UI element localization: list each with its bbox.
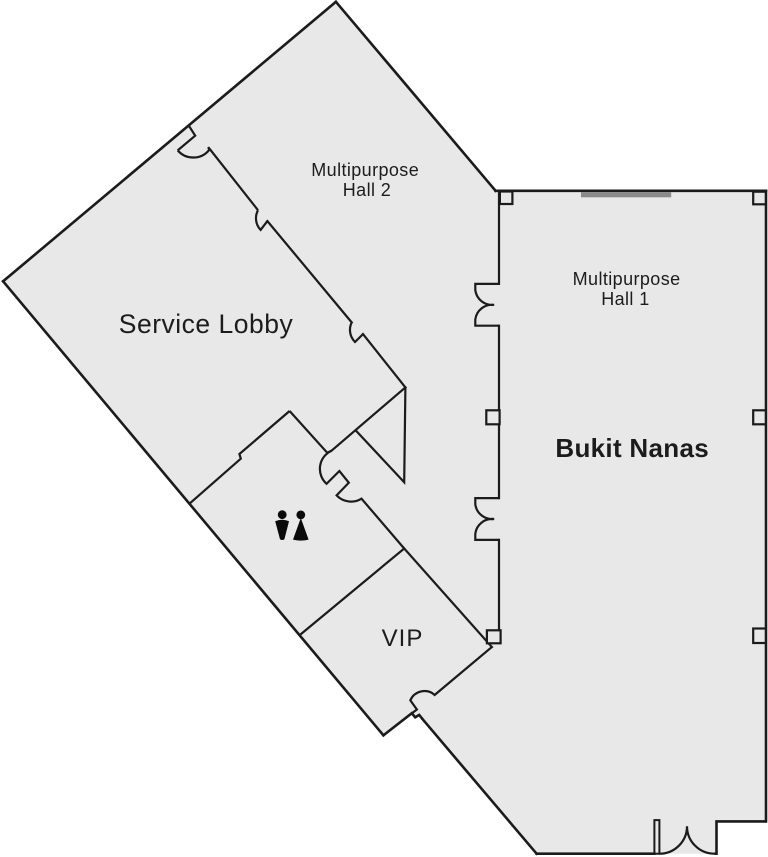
svg-text:Multipurpose: Multipurpose (311, 160, 419, 180)
svg-text:Bukit Nanas: Bukit Nanas (555, 433, 709, 463)
svg-text:Multipurpose: Multipurpose (573, 269, 681, 289)
svg-text:Hall 2: Hall 2 (343, 180, 391, 200)
svg-text:Hall 1: Hall 1 (601, 289, 649, 309)
svg-text:Service Lobby: Service Lobby (119, 309, 294, 339)
svg-text:VIP: VIP (382, 625, 424, 652)
